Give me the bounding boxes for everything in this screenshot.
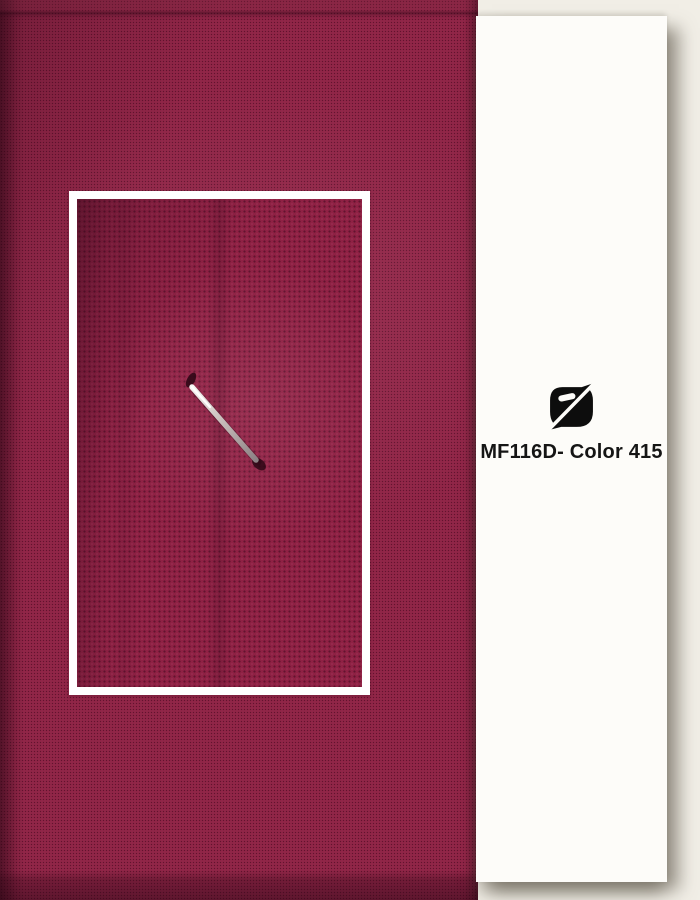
- fabric-detail-inset: [69, 191, 370, 695]
- brand-monogram-icon: [547, 382, 596, 431]
- brand-card: MF116D- Color 415: [476, 16, 667, 882]
- fastening-pin: [77, 199, 362, 687]
- info-panel: MF116D- Color 415: [478, 0, 700, 900]
- fabric-detail-texture: [77, 199, 362, 687]
- brand-block: MF116D- Color 415: [480, 382, 662, 464]
- fabric-swatch-photo: [0, 0, 478, 900]
- product-image: MF116D- Color 415: [0, 0, 700, 900]
- product-code-label: MF116D- Color 415: [480, 441, 662, 464]
